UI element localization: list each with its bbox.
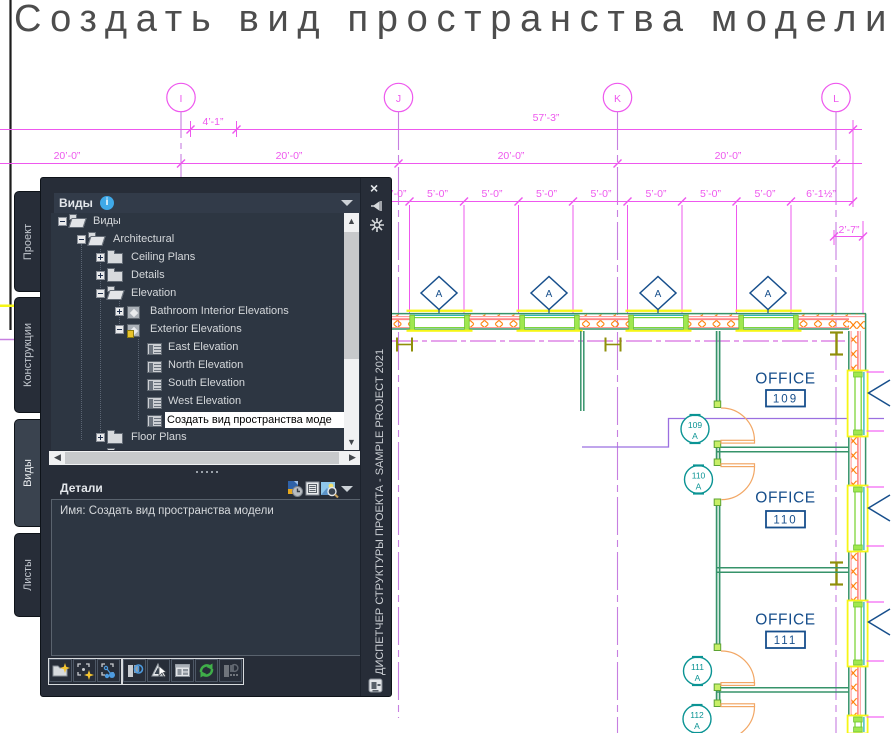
svg-text:20’-0”: 20’-0” (715, 150, 742, 162)
svg-text:110: 110 (773, 515, 797, 527)
svg-text:5’-0”: 5’-0” (427, 188, 449, 200)
svg-text:4’-1”: 4’-1” (202, 116, 224, 128)
svg-text:112: 112 (690, 710, 704, 720)
svg-text:K: K (614, 93, 621, 105)
svg-text:A: A (692, 431, 698, 441)
svg-text:L: L (833, 93, 839, 105)
svg-text:20’-0”: 20’-0” (276, 150, 303, 162)
svg-text:5’-0”: 5’-0” (481, 188, 503, 200)
svg-text:111: 111 (774, 635, 797, 647)
svg-text:111: 111 (691, 662, 704, 672)
svg-text:A: A (436, 289, 443, 300)
svg-text:I: I (180, 93, 183, 105)
svg-text:20’-0”: 20’-0” (498, 150, 525, 162)
svg-text:5’-0”: 5’-0” (645, 188, 667, 200)
svg-text:OFFICE: OFFICE (755, 490, 815, 507)
svg-text:2’-7”: 2’-7” (838, 224, 860, 236)
svg-text:109: 109 (773, 394, 798, 406)
svg-text:OFFICE: OFFICE (755, 612, 815, 629)
svg-text:5’-0”: 5’-0” (590, 188, 612, 200)
svg-text:57’-3”: 57’-3” (533, 112, 560, 124)
svg-text:A: A (696, 482, 702, 492)
svg-text:A: A (546, 289, 553, 300)
svg-text:5’-0”: 5’-0” (536, 188, 558, 200)
svg-text:J: J (396, 93, 401, 105)
svg-text:110: 110 (692, 471, 706, 481)
svg-text:6’-1½”: 6’-1½” (806, 188, 836, 200)
svg-text:OFFICE: OFFICE (755, 371, 815, 388)
svg-text:20’-0”: 20’-0” (54, 150, 81, 162)
svg-text:A: A (655, 289, 662, 300)
svg-text:109: 109 (688, 420, 702, 430)
svg-text:5’-0”: 5’-0” (700, 188, 722, 200)
svg-text:A: A (695, 673, 701, 683)
svg-text:A: A (694, 721, 700, 731)
svg-text:5’-0”: 5’-0” (754, 188, 776, 200)
svg-text:A: A (765, 289, 772, 300)
